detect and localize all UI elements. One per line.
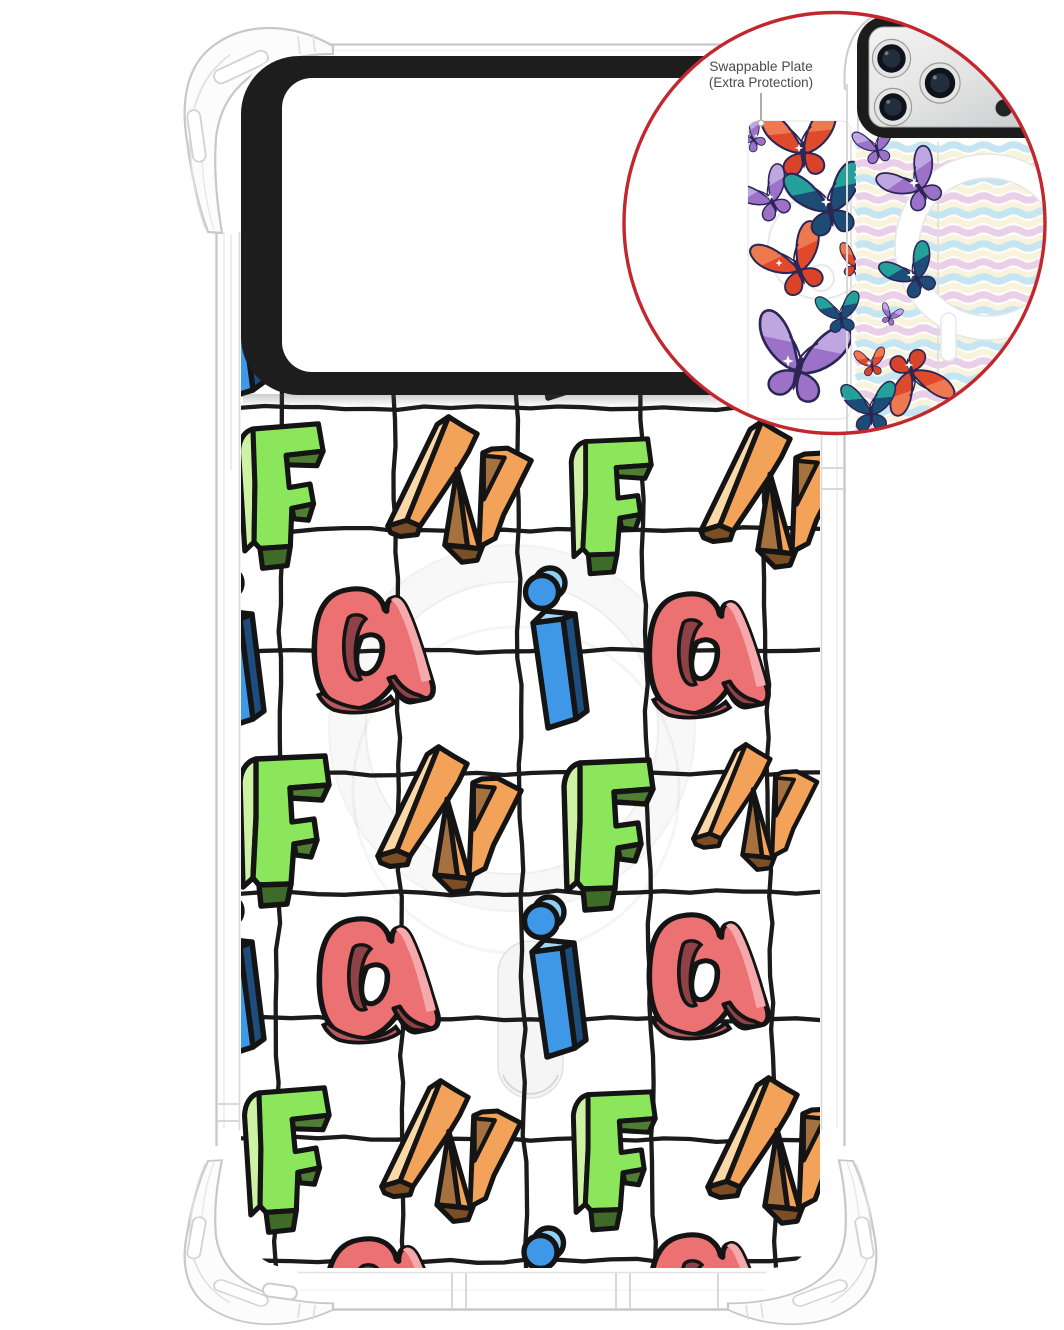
svg-text:(Extra Protection): (Extra Protection) [709, 75, 813, 90]
svg-text:Swappable Plate: Swappable Plate [709, 59, 813, 74]
